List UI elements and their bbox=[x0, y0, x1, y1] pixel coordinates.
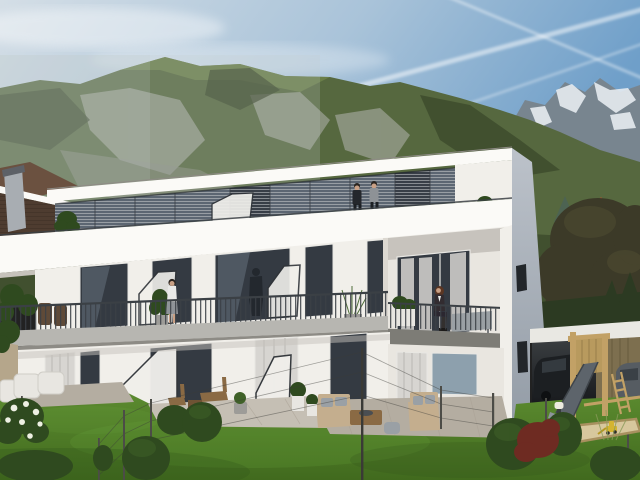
pouf bbox=[384, 422, 400, 434]
scene-svg bbox=[0, 0, 640, 480]
lounge-sofa-left bbox=[316, 394, 352, 428]
coffee-table bbox=[350, 410, 382, 425]
architectural-rendering bbox=[0, 0, 640, 480]
lounge-sofa-right bbox=[408, 392, 440, 431]
side-window-2 bbox=[517, 341, 528, 373]
side-window-1 bbox=[516, 264, 527, 292]
